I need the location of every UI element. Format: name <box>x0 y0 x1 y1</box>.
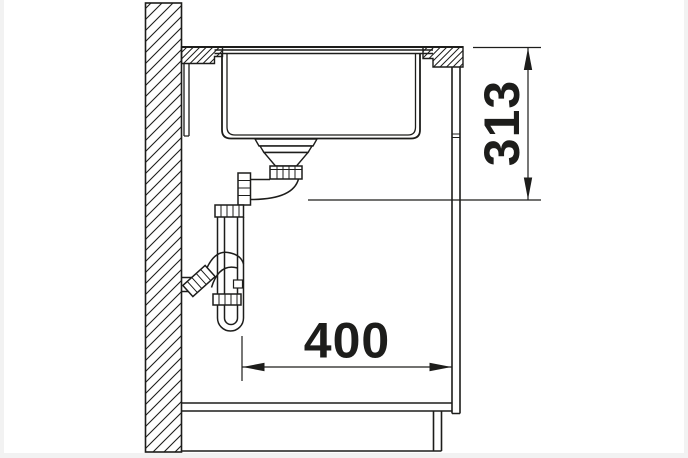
dimension-313-label: 313 <box>474 80 530 166</box>
drawing-sheet <box>4 0 684 453</box>
trap-top-nut <box>215 205 244 217</box>
dimension-400-label: 400 <box>304 313 390 369</box>
sink-section-drawing: 313 400 <box>0 0 688 458</box>
trap-body-nut <box>213 294 241 305</box>
sink-installation-diagram: 313 400 <box>0 0 688 458</box>
pipe-clip <box>234 280 243 288</box>
elbow-coupling-nut <box>238 173 251 205</box>
wall-section <box>146 3 182 452</box>
